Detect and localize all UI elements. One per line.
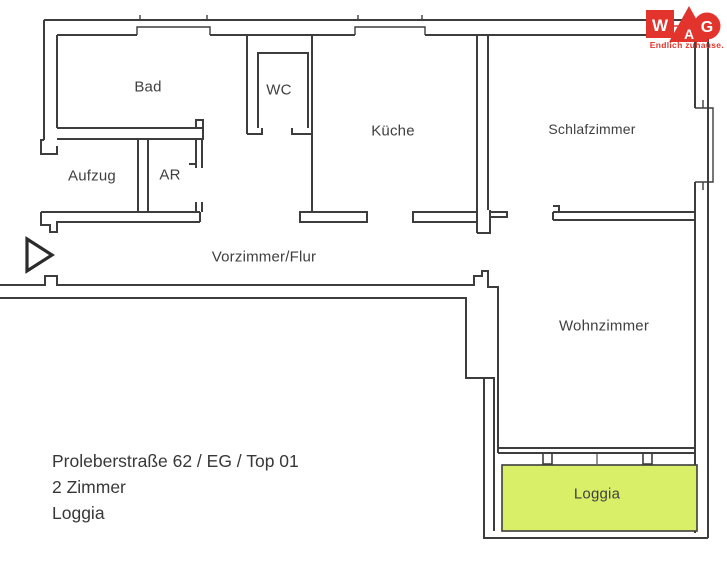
address-line-3: Loggia (52, 500, 299, 526)
room-label-schlafzimmer: Schlafzimmer (548, 121, 635, 137)
logo-letter-w: W (652, 16, 669, 35)
logo-letter-g: G (701, 19, 713, 36)
window-right-schlafzimmer (695, 100, 713, 190)
window-top-kueche (355, 15, 425, 35)
room-label-vorzimmer: Vorzimmer/Flur (212, 249, 316, 266)
room-label-ar: AR (159, 167, 180, 184)
room-label-wohnzimmer: Wohnzimmer (559, 318, 649, 335)
wag-logo: W A G Endlich zuhause. (642, 2, 726, 52)
address-line-1: Proleberstraße 62 / EG / Top 01 (52, 448, 299, 474)
walls-wc (247, 35, 312, 212)
wall-wohnzimmer-bottom (498, 448, 695, 453)
room-label-aufzug: Aufzug (68, 168, 116, 185)
walls-kueche-bottom (300, 212, 477, 222)
room-label-kueche: Küche (371, 123, 415, 140)
address-line-2: 2 Zimmer (52, 474, 299, 500)
room-label-bad: Bad (134, 79, 161, 96)
walls-aufzug-ar (41, 139, 202, 232)
entrance-arrow-icon (27, 239, 52, 271)
room-label-loggia: Loggia (574, 486, 620, 503)
wall-schlafzimmer-wohnzimmer (553, 206, 695, 220)
wall-kueche-schlafzimmer (477, 35, 507, 233)
window-top-bad (137, 15, 210, 35)
address-block: Proleberstraße 62 / EG / Top 01 2 Zimmer… (52, 448, 299, 526)
loggia-door-frames (543, 453, 652, 464)
floor-plan-page: Bad WC Küche Schlafzimmer Aufzug AR Vorz… (0, 0, 727, 576)
room-label-wc: WC (266, 82, 291, 99)
wall-bad-bottom (57, 120, 203, 139)
logo-tagline: Endlich zuhause. (642, 40, 724, 50)
